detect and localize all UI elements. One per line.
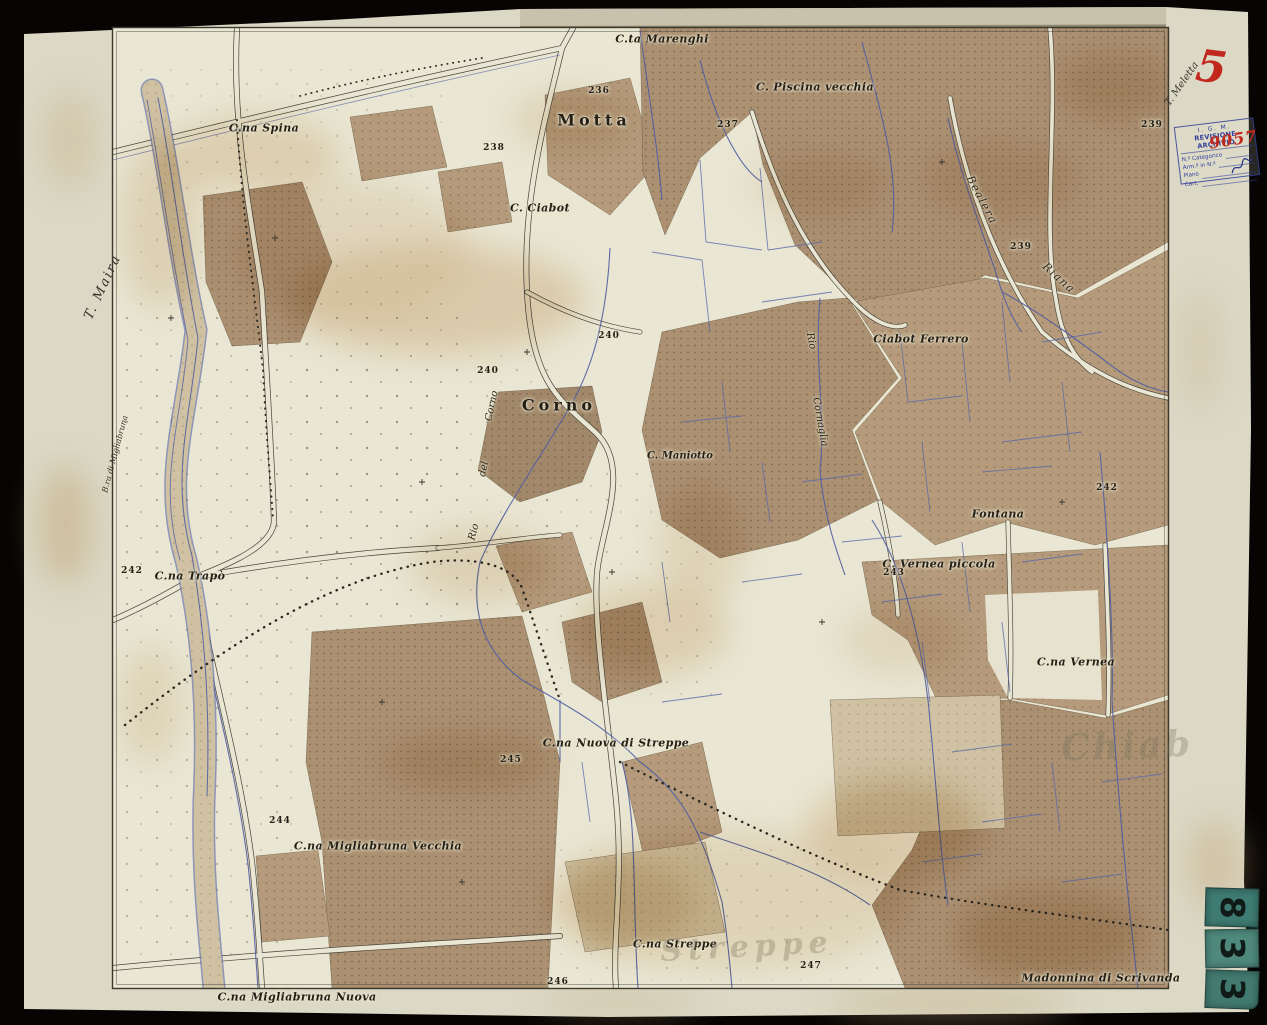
- stamp-field-cart: Cart.: [1184, 179, 1199, 189]
- scanned-map-sheet: C.ta Marenghi236MottaC. Piscina vecchia2…: [0, 0, 1267, 1025]
- inventory-sticker-middle: 3: [1205, 929, 1260, 969]
- sticker-digit: 3: [1215, 977, 1249, 1001]
- sticker-digit: 3: [1215, 937, 1248, 961]
- sticker-digit: 8: [1215, 896, 1249, 920]
- map-scan-art: [0, 0, 1267, 1025]
- inventory-sticker-bottom: 3: [1204, 969, 1259, 1010]
- inventory-stickers: 8 3 3: [1205, 888, 1259, 1011]
- archive-sheet-number: 5: [1193, 44, 1229, 91]
- inventory-sticker-top: 8: [1204, 887, 1259, 927]
